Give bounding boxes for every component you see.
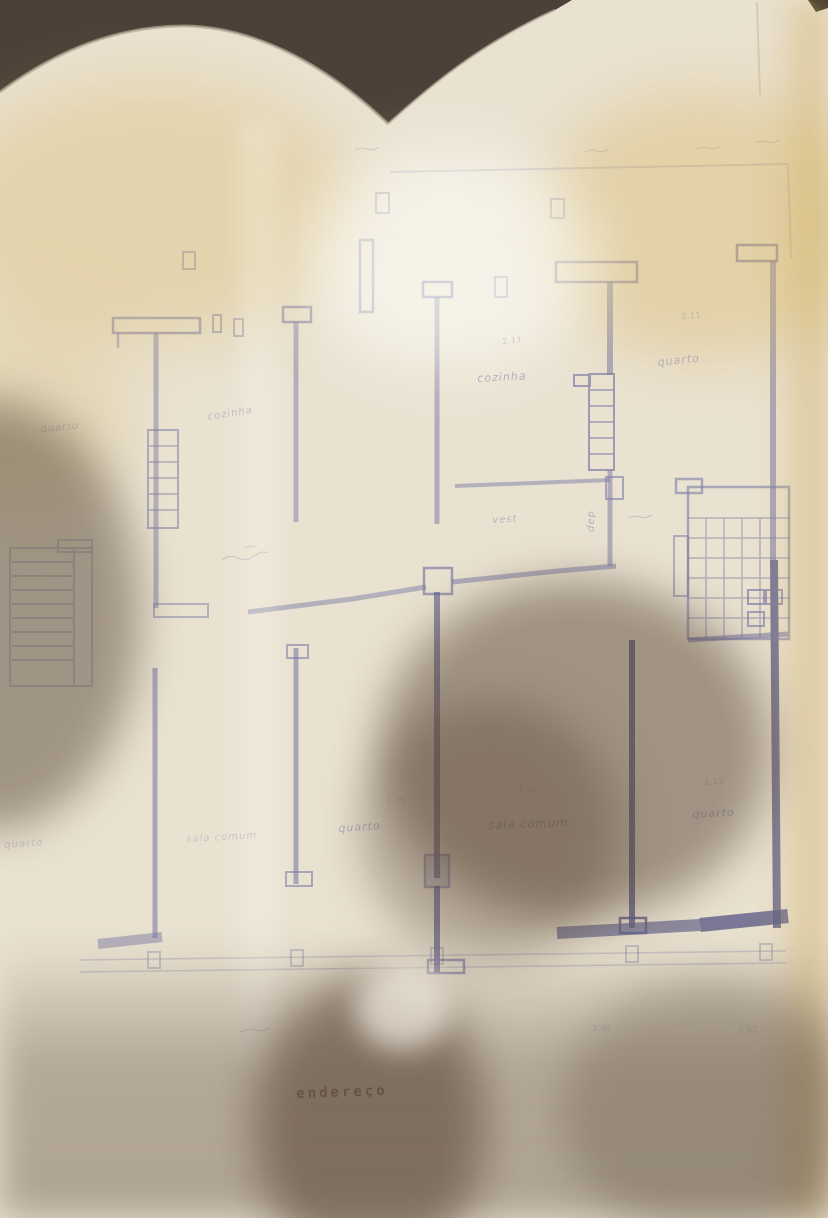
- cast-shadows: [0, 0, 828, 1218]
- photographed-floor-plan: cozinhaquartocozinhaquartovestdepsala co…: [0, 0, 828, 1218]
